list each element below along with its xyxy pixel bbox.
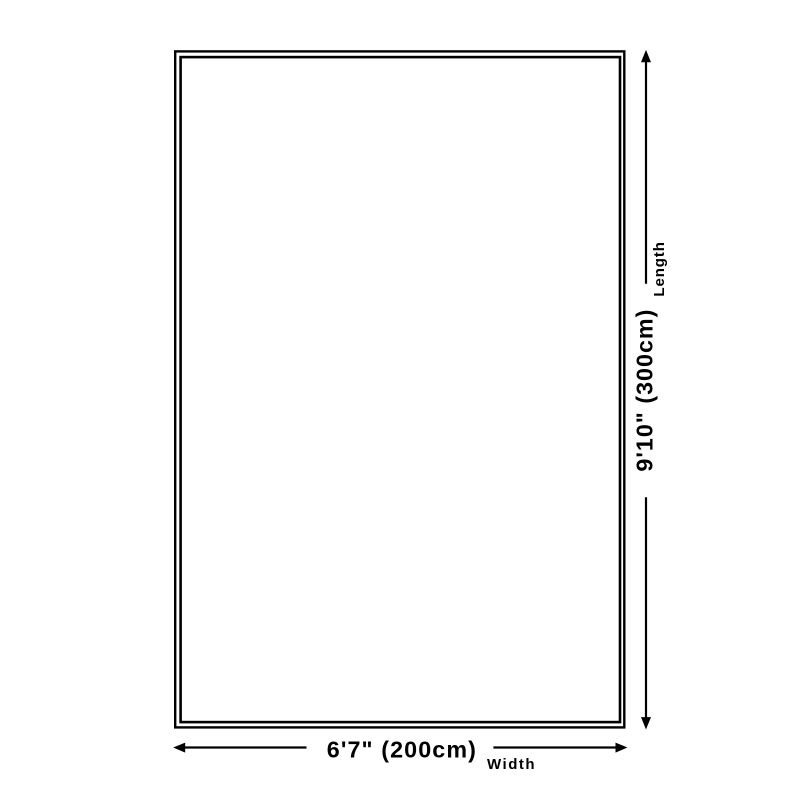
svg-text:6'7" (200cm): 6'7" (200cm) [327,737,477,763]
svg-text:9'10" (300cm): 9'10" (300cm) [632,309,658,472]
svg-text:Length: Length [651,241,668,296]
svg-text:Width: Width [487,756,536,773]
